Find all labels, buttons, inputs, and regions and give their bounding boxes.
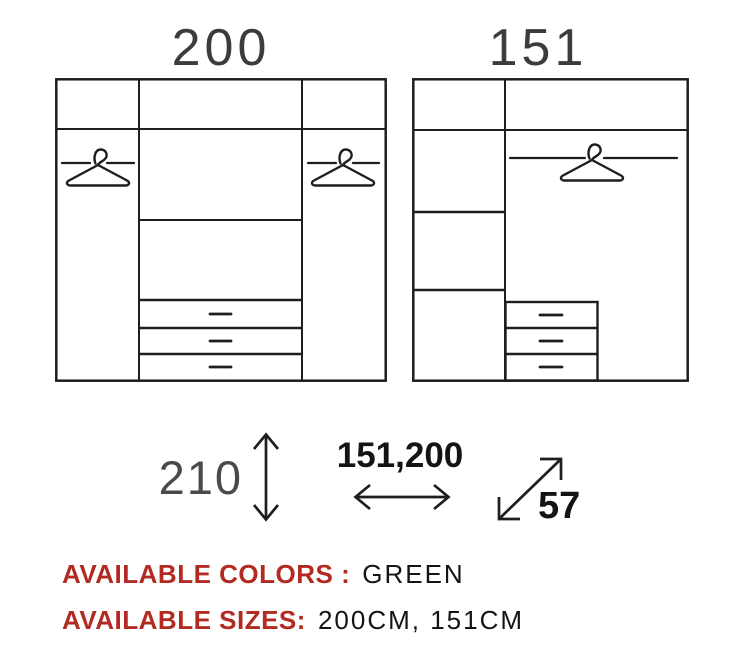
width-arrow-icon — [351, 479, 453, 515]
wardrobe-151-diagram — [412, 78, 689, 382]
available-sizes-label: AVAILABLE SIZES: — [62, 605, 306, 635]
hanger-icon — [67, 150, 129, 186]
available-sizes-value: 200CM, 151CM — [318, 605, 524, 635]
height-dimension-value: 210 — [135, 454, 243, 501]
drawer-handles — [210, 314, 231, 367]
available-sizes-line: AVAILABLE SIZES:200CM, 151CM — [62, 607, 524, 633]
width-dimension-value: 151,200 — [318, 438, 482, 473]
height-arrow-icon — [247, 430, 285, 524]
wardrobe-spec-sheet: 200 151 — [0, 0, 756, 657]
available-colors-label: AVAILABLE COLORS : — [62, 559, 350, 589]
available-colors-value: GREEN — [362, 559, 464, 589]
wardrobe-200-label: 200 — [121, 22, 321, 74]
drawer-handles — [540, 315, 562, 367]
hanger-icon — [561, 145, 623, 181]
wardrobe-151-label: 151 — [438, 22, 638, 74]
hanger-icon — [312, 150, 374, 186]
available-colors-line: AVAILABLE COLORS :GREEN — [62, 561, 465, 587]
wardrobe-200-diagram — [55, 78, 387, 382]
depth-dimension-value: 57 — [538, 487, 580, 525]
